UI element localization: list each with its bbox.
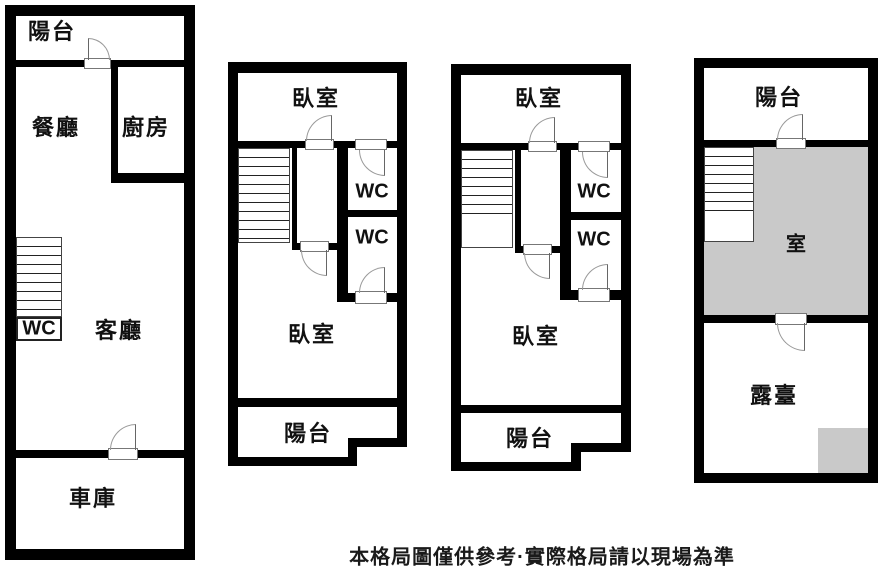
wall xyxy=(694,58,878,68)
staircase xyxy=(704,147,754,242)
wall xyxy=(694,58,704,483)
door-swing-icon xyxy=(777,323,805,351)
wall xyxy=(868,58,878,483)
floor-plan-diagram: 陽台 餐廳 廚房 客廳 WC 車庫 xyxy=(0,0,889,579)
floor-plan-4: 陽台 室 露臺 xyxy=(0,0,889,579)
room-label-balcony: 陽台 xyxy=(755,80,803,112)
wall xyxy=(694,473,878,483)
disclaimer-text: 本格局圖僅供參考·實際格局請以現場為準 xyxy=(349,541,735,570)
room-label-terrace: 露臺 xyxy=(750,378,798,410)
stair-treads xyxy=(705,148,753,216)
shaded-corner-area xyxy=(818,428,868,473)
door-swing-icon xyxy=(777,114,803,140)
room-label-room: 室 xyxy=(786,228,806,257)
